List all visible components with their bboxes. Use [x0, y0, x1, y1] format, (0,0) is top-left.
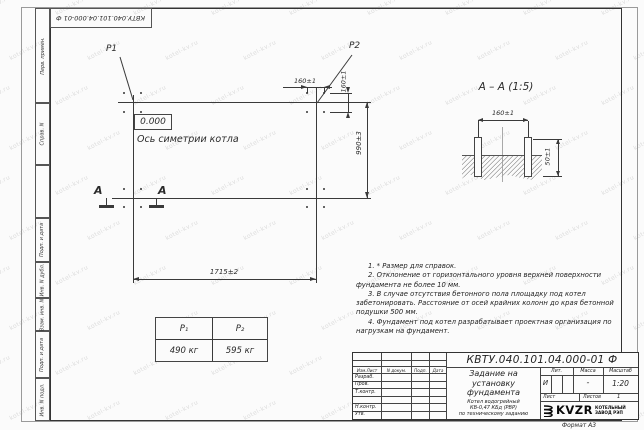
anchor-bolt-dot — [123, 188, 125, 190]
load-table-header-p1: P₁ — [156, 318, 212, 339]
stamp-label: Взам. инв. N — [40, 298, 46, 331]
axis-line-mid — [112, 198, 332, 199]
row-nkontr: Н.контр. — [355, 405, 376, 410]
stamp-inv-podl: Инв. N подл. — [35, 378, 50, 421]
row-razrab: Разраб. — [355, 375, 374, 380]
stamp-vzam-inv: Взам. инв. N — [35, 298, 50, 331]
tb-line — [562, 375, 563, 393]
stamp-label: Перв. примен. — [40, 37, 46, 75]
anchor-bolt-dot — [306, 92, 308, 94]
doc-title: Задание на установку фундамента — [447, 369, 540, 398]
dim-label-160-top: 160±1 — [282, 77, 328, 85]
dim-arrow — [133, 277, 139, 281]
stamp-label: Инв. N подл. — [40, 383, 46, 416]
company-logo-row: KVZR КОТЕЛЬНЫЙ ЗАВОД РЭП — [542, 402, 636, 418]
dim-arrow — [324, 85, 330, 89]
section-cut-bar — [99, 205, 114, 208]
lit-label: Лит. — [540, 369, 573, 374]
company-name: КОТЕЛЬНЫЙ ЗАВОД РЭП — [595, 405, 626, 415]
doc-title-line2: установку — [447, 379, 540, 389]
stamp-empty — [35, 165, 50, 218]
dim-arrow — [301, 85, 307, 89]
dim-arrow — [556, 171, 560, 176]
drawing-sheet: kotel-kv.rukotel-kv.rukotel-kv.rukotel-k… — [0, 0, 644, 430]
doc-subtitle: Котел водогрейный КВ-0,47 КБд (РВР) по т… — [447, 399, 540, 417]
col-podp: Подп. — [412, 368, 429, 373]
anchor-bolt-dot — [306, 111, 308, 113]
title-block: КВТУ.040.101.04.000-01 Ф Изм.Лист N доку… — [352, 352, 639, 420]
corner-doc-number: КВТУ.040.101.04.000-01 Ф — [56, 14, 145, 22]
row-prov: Пров. — [355, 382, 369, 387]
load-table-row-divider — [156, 339, 267, 340]
note-4: 4. Фундамент под котел разрабатывает про… — [356, 318, 616, 337]
aa-ext-line-l — [478, 121, 479, 137]
format-label: Формат А3 — [556, 422, 602, 429]
boiler-axis-label: Ось симетрии котла — [137, 134, 239, 145]
col-data: Дата — [430, 368, 446, 373]
mass-value: - — [573, 378, 603, 387]
anchor-bolt-dot — [306, 188, 308, 190]
ext-line-990-bottom — [332, 198, 371, 199]
tb-line — [411, 353, 412, 419]
aa-ext-line-r — [528, 121, 529, 137]
dim-label-990: 990±3 — [355, 119, 365, 167]
anchor-bolt-dot — [123, 111, 125, 113]
level-mark-box: 0.000 — [134, 114, 172, 130]
stamp-label: Подп. и дата — [40, 337, 46, 371]
sheets-label: Листов — [583, 395, 601, 400]
section-view-title: А – А (1:5) — [458, 81, 554, 93]
anchor-bolt-dot — [140, 188, 142, 190]
aa-dim-line-160 — [478, 120, 528, 121]
stamp-label: Справ. N — [40, 123, 46, 146]
stamp-label: Инв. N дубл. — [40, 264, 46, 297]
row-tkontr: Т.контр. — [355, 390, 376, 395]
stamp-podp-data-2: Подп. и дата — [35, 331, 50, 378]
anchor-bolt-dot — [140, 111, 142, 113]
tb-line — [353, 366, 446, 367]
scale-label: Масштаб — [603, 369, 638, 374]
anchor-bolt-dot — [323, 188, 325, 190]
row-utv: Утв. — [355, 412, 365, 417]
dim-label-160-right: 160±1 — [340, 61, 349, 103]
anchor-bolt-dot — [323, 206, 325, 208]
lit-value: И — [540, 379, 551, 387]
anchor-bolt-dot — [140, 92, 142, 94]
sheets-value: 1 — [617, 394, 620, 400]
anchor-bolt-dot — [306, 206, 308, 208]
doc-title-line1: Задание на — [447, 369, 540, 379]
mass-label: Масса — [573, 369, 603, 374]
anchor-bolt-dot — [140, 206, 142, 208]
dim-label-1715: 1715±2 — [164, 268, 284, 276]
p1-label: P1 — [106, 44, 117, 54]
section-mark-letter: А — [158, 184, 167, 197]
anchor-bolt-dot — [323, 92, 325, 94]
tb-line — [429, 353, 430, 419]
dim-label-50: 50±1 — [544, 143, 553, 171]
load-table-value-p2: 595 кг — [213, 340, 267, 361]
stamp-sprav-n: Справ. N — [35, 103, 50, 165]
col-izm-list: Изм.Лист — [353, 368, 381, 373]
note-3: 3. В случае отсутствия бетонного пола пл… — [356, 290, 616, 318]
stamp-label: Подп. и дата — [40, 223, 46, 257]
dim-arrow — [523, 118, 528, 122]
p1-leader-line — [120, 57, 133, 100]
tb-line — [353, 396, 446, 397]
technical-notes: 1. * Размер для справок. 2. Отклонение о… — [356, 262, 616, 336]
axis-line-right — [316, 88, 317, 283]
dim-arrow — [310, 277, 316, 281]
stamp-inv-dubl: Инв. N дубл. — [35, 262, 50, 298]
doc-number: КВТУ.040.101.04.000-01 Ф — [446, 353, 638, 367]
dim-arrow — [365, 102, 369, 108]
scale-value: 1:20 — [603, 379, 638, 388]
dim-arrow — [346, 112, 350, 118]
dim-line-990 — [367, 102, 368, 198]
load-table-header-p2: P₂ — [213, 318, 267, 339]
tb-line — [353, 411, 446, 412]
tb-line — [551, 375, 552, 393]
load-table-value-p1: 490 кг — [156, 340, 212, 361]
doc-subtitle-line3: по техническому заданию — [447, 411, 540, 417]
dim-arrow — [478, 118, 483, 122]
sheet-label: Лист — [543, 395, 555, 400]
anchor-bolt-dot — [123, 92, 125, 94]
section-cut-bar — [149, 205, 164, 208]
dim-arrow — [365, 192, 369, 198]
axis-line-top — [118, 102, 332, 103]
corner-doc-number-stamp: КВТУ.040.101.04.000-01 Ф — [50, 8, 152, 28]
dim-line-1715 — [133, 279, 316, 280]
anchor-bolt-left — [474, 137, 482, 177]
aa-dim-label-160: 160±1 — [476, 109, 530, 117]
anchor-bolt-right — [524, 137, 532, 177]
company-name-line2: ЗАВОД РЭП — [595, 410, 623, 415]
note-2: 2. Отклонение от горизонтального уровня … — [356, 271, 616, 290]
section-mark-letter: А — [94, 184, 103, 197]
company-logo-text: KVZR — [556, 403, 593, 417]
anchor-bolt-dot — [323, 111, 325, 113]
tb-line — [381, 353, 382, 419]
ext-line-50-bottom — [543, 176, 562, 177]
doc-title-line3: фундамента — [447, 388, 540, 398]
dim-arrow — [556, 139, 560, 144]
load-table: P₁ P₂ 490 кг 595 кг — [155, 317, 268, 362]
p2-label: P2 — [349, 41, 360, 51]
level-mark: 0.000 — [140, 117, 166, 127]
stamp-perv-primen: Перв. примен. — [35, 8, 50, 103]
tb-line — [540, 375, 638, 376]
tb-line — [353, 360, 446, 361]
anchor-bolt-dot — [123, 206, 125, 208]
col-n-dokum: N докум. — [382, 368, 411, 373]
note-1: 1. * Размер для справок. — [356, 262, 616, 271]
stamp-podp-data-1: Подп. и дата — [35, 218, 50, 262]
tb-line — [579, 393, 580, 401]
coil-icon — [542, 404, 554, 417]
